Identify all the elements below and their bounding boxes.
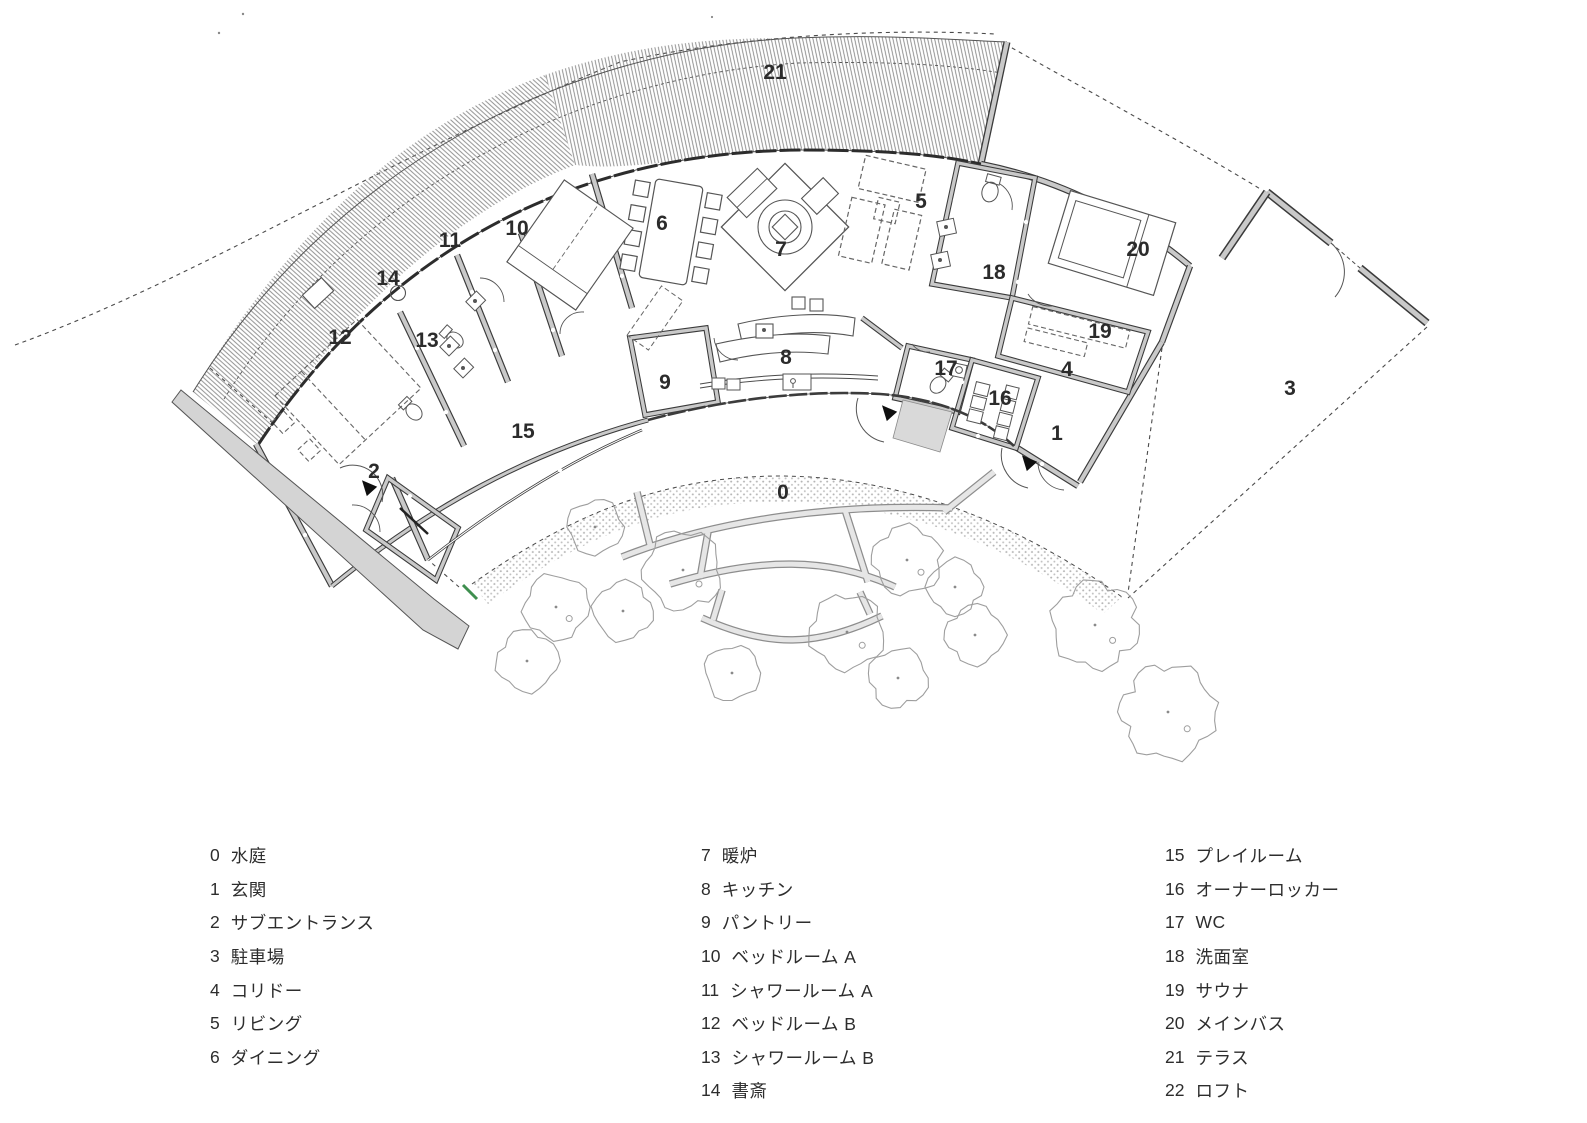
legend-row: 1玄関 <box>210 873 374 907</box>
room-label-5: 5 <box>915 190 927 213</box>
room-label-0: 0 <box>777 481 789 504</box>
legend-name: 駐車場 <box>231 944 285 969</box>
legend-column-3: 15プレイルーム 16オーナーロッカー 17WC 18洗面室 19サウナ 20メ… <box>1165 839 1339 1108</box>
room-label-13: 13 <box>415 329 438 352</box>
legend-number: 6 <box>210 1047 220 1068</box>
legend-number: 21 <box>1165 1047 1184 1068</box>
legend-name: シャワールーム B <box>731 1045 874 1070</box>
legend-row: 3駐車場 <box>210 940 374 974</box>
room-label-8: 8 <box>780 346 792 369</box>
stray-marks <box>218 13 713 34</box>
legend-row: 21テラス <box>1165 1041 1339 1075</box>
legend-number: 3 <box>210 946 220 967</box>
tree-detail-circle <box>1110 637 1116 643</box>
legend-number: 1 <box>210 879 220 900</box>
room-label-3: 3 <box>1284 377 1296 400</box>
legend-row: 9パントリー <box>701 906 874 940</box>
legend-name: WC <box>1195 912 1225 933</box>
legend-number: 11 <box>701 980 719 1001</box>
room-label-21: 21 <box>763 61 787 84</box>
legend-name: サウナ <box>1195 978 1249 1003</box>
legend-row: 16オーナーロッカー <box>1165 873 1339 907</box>
legend-number: 18 <box>1165 946 1184 967</box>
legend-number: 10 <box>701 946 720 967</box>
legend-row: 11シャワールーム A <box>701 973 874 1007</box>
gravel-band <box>472 476 1122 614</box>
legend-name: ダイニング <box>231 1045 321 1070</box>
legend-name: キッチン <box>722 877 794 902</box>
legend-row: 19サウナ <box>1165 973 1339 1007</box>
legend-row: 5リビング <box>210 1007 374 1041</box>
legend-name: プレイルーム <box>1195 843 1302 868</box>
legend-name: リビング <box>231 1011 303 1036</box>
room-label-7: 7 <box>775 238 787 261</box>
room-label-12: 12 <box>328 326 351 349</box>
legend-number: 12 <box>701 1013 720 1034</box>
legend-name: 洗面室 <box>1195 944 1249 969</box>
tree-center-dot <box>526 660 529 663</box>
legend-name: メインバス <box>1195 1011 1285 1036</box>
legend-row: 10ベッドルーム A <box>701 940 874 974</box>
tree-center-dot <box>974 634 977 637</box>
legend-row: 7暖炉 <box>701 839 874 873</box>
legend-row: 8キッチン <box>701 873 874 907</box>
room-label-17: 17 <box>934 357 957 380</box>
tree-icon <box>1118 665 1219 762</box>
legend-name: 暖炉 <box>722 843 758 868</box>
room-label-16: 16 <box>988 387 1011 410</box>
room-label-10: 10 <box>505 217 528 240</box>
tree-center-dot <box>555 606 558 609</box>
room-label-14: 14 <box>376 267 400 290</box>
room-label-1: 1 <box>1051 422 1063 445</box>
water-garden <box>472 472 1219 762</box>
legend-row: 17WC <box>1165 906 1339 940</box>
legend-row: 20メインバス <box>1165 1007 1339 1041</box>
tree-center-dot <box>682 569 685 572</box>
legend-number: 17 <box>1165 912 1184 933</box>
tree-center-dot <box>897 677 900 680</box>
legend-name: オーナーロッカー <box>1195 877 1339 902</box>
floor-plan-page: 0 1 2 3 4 5 6 7 8 9 10 11 12 13 14 15 16… <box>0 0 1587 1123</box>
legend-number: 8 <box>701 879 711 900</box>
legend-number: 14 <box>701 1080 720 1101</box>
legend-name: サブエントランス <box>231 910 375 935</box>
legend-name: ベッドルーム B <box>731 1011 856 1036</box>
legend-number: 0 <box>210 845 220 866</box>
legend-row: 4コリドー <box>210 973 374 1007</box>
tree-center-dot <box>731 672 734 675</box>
legend-number: 2 <box>210 912 220 933</box>
tree-center-dot <box>594 526 597 529</box>
legend-column-2: 7暖炉 8キッチン 9パントリー 10ベッドルーム A 11シャワールーム A … <box>701 839 874 1108</box>
legend-row: 12ベッドルーム B <box>701 1007 874 1041</box>
legend-number: 22 <box>1165 1080 1184 1101</box>
legend-number: 13 <box>701 1047 720 1068</box>
room-label-15: 15 <box>511 420 535 443</box>
legend-number: 4 <box>210 980 220 1001</box>
tree-detail-circle <box>566 616 572 622</box>
legend-number: 15 <box>1165 845 1184 866</box>
tree-detail-circle <box>696 581 702 587</box>
legend-row: 2サブエントランス <box>210 906 374 940</box>
tree-center-dot <box>954 586 957 589</box>
tree-center-dot <box>1167 711 1170 714</box>
tree-center-dot <box>622 610 625 613</box>
legend-row: 22ロフト <box>1165 1074 1339 1108</box>
tree-detail-circle <box>1184 726 1190 732</box>
tree-detail-circle <box>918 569 924 575</box>
room-label-2: 2 <box>368 460 380 483</box>
room-label-9: 9 <box>659 371 671 394</box>
legend-number: 5 <box>210 1013 220 1034</box>
tree-center-dot <box>846 631 849 634</box>
room-label-11: 11 <box>439 229 462 252</box>
dining-table <box>619 175 723 289</box>
legend-number: 19 <box>1165 980 1184 1001</box>
legend-row: 0水庭 <box>210 839 374 873</box>
legend-row: 18洗面室 <box>1165 940 1339 974</box>
legend-name: コリドー <box>231 978 303 1003</box>
legend-number: 9 <box>701 912 711 933</box>
legend-number: 7 <box>701 845 711 866</box>
legend-name: 書斎 <box>731 1078 767 1103</box>
legend-name: パントリー <box>722 910 813 935</box>
room-label-6: 6 <box>656 212 668 235</box>
legend-number: 16 <box>1165 879 1184 900</box>
parking-area <box>1222 192 1427 323</box>
legend-row: 14書斎 <box>701 1074 874 1108</box>
room-label-19: 19 <box>1088 320 1111 343</box>
legend-row: 13シャワールーム B <box>701 1041 874 1075</box>
legend-number: 20 <box>1165 1013 1184 1034</box>
tree-center-dot <box>1094 624 1097 627</box>
legend-row: 6ダイニング <box>210 1041 374 1075</box>
room-label-20: 20 <box>1126 238 1149 261</box>
terrace-hatch-right <box>545 37 1007 167</box>
room-label-4: 4 <box>1061 358 1073 381</box>
legend-column-1: 0水庭 1玄関 2サブエントランス 3駐車場 4コリドー 5リビング 6ダイニン… <box>210 839 374 1074</box>
legend-name: ベッドルーム A <box>731 944 856 969</box>
legend-name: ロフト <box>1195 1078 1249 1103</box>
legend-name: テラス <box>1195 1045 1249 1070</box>
tree-detail-circle <box>859 642 865 648</box>
tree-center-dot <box>906 559 909 562</box>
room-label-18: 18 <box>982 261 1006 284</box>
legend-name: シャワールーム A <box>730 978 873 1003</box>
legend-name: 水庭 <box>231 843 267 868</box>
legend-row: 15プレイルーム <box>1165 839 1339 873</box>
legend-name: 玄関 <box>231 877 267 902</box>
legend: 0水庭 1玄関 2サブエントランス 3駐車場 4コリドー 5リビング 6ダイニン… <box>0 839 1587 1123</box>
